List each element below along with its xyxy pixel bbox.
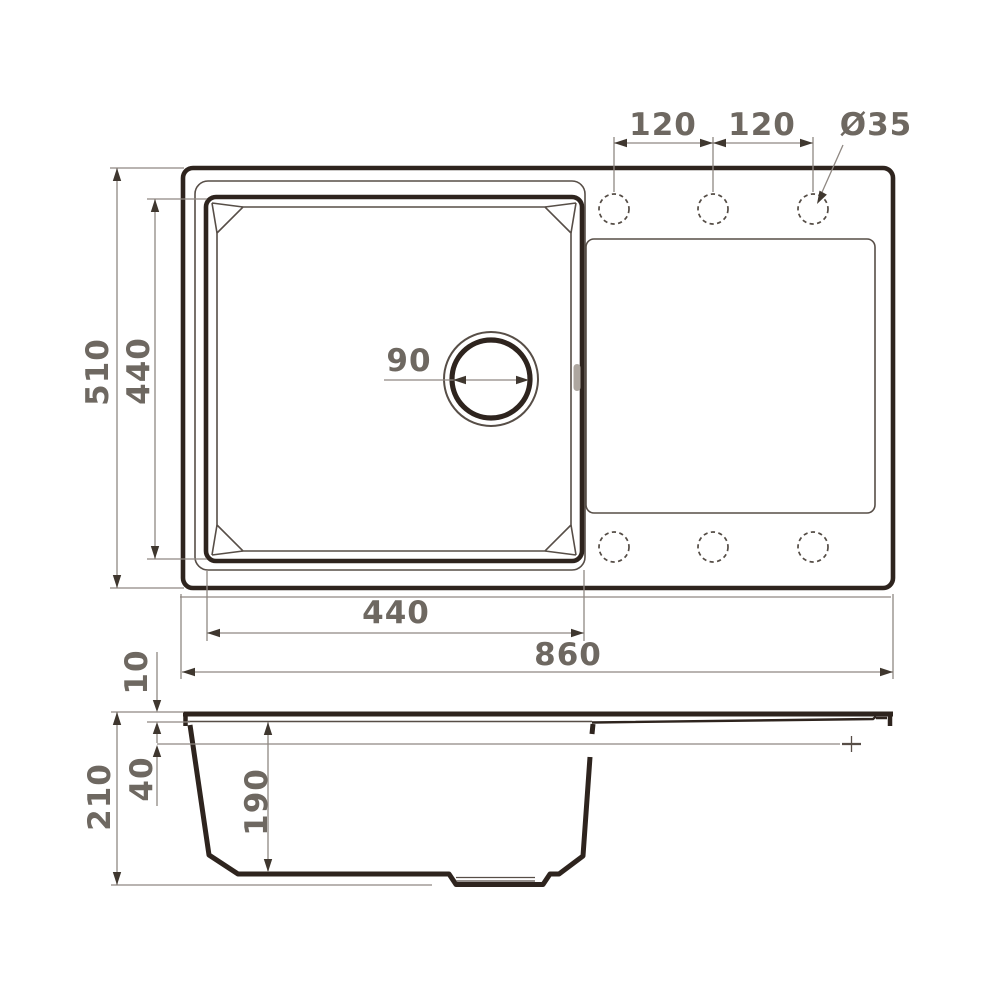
dim-label-hole-pitch-left: 120 (629, 107, 697, 143)
dim-label-rim-height: 10 (119, 649, 155, 694)
section-view: 210 190 10 40 (82, 649, 893, 885)
section-drainboard-surface (592, 717, 887, 723)
tap-hole (698, 532, 728, 562)
top-view: 120 120 Ø35 510 440 90 (80, 107, 912, 679)
drainboard-outline (586, 239, 875, 513)
tap-hole (798, 194, 828, 224)
drawing-canvas: 120 120 Ø35 510 440 90 (0, 0, 1000, 1000)
tap-hole (599, 194, 629, 224)
dim-label-hole-pitch-right: 120 (728, 107, 796, 143)
overflow-mark (574, 364, 581, 391)
dim-label-drain-diameter: 90 (386, 343, 431, 379)
dim-hole-pitch (614, 137, 843, 204)
dim-label-overall-depth: 210 (82, 763, 118, 831)
dim-label-hole-diameter: Ø35 (840, 107, 913, 143)
tap-hole (798, 532, 828, 562)
sink-dimension-drawing: 120 120 Ø35 510 440 90 (0, 0, 1000, 1000)
dim-label-bowl-depth: 190 (239, 768, 275, 836)
dim-label-overflow-depth: 40 (124, 756, 160, 801)
section-overflow-level (157, 736, 861, 752)
tap-hole (599, 532, 629, 562)
dim-label-bowl-width: 440 (121, 337, 157, 405)
dim-label-bowl-length: 440 (362, 595, 430, 631)
dim-label-outer-width: 510 (80, 338, 116, 406)
tap-hole (698, 194, 728, 224)
tap-holes (599, 194, 828, 562)
dim-label-outer-length: 860 (534, 637, 602, 673)
